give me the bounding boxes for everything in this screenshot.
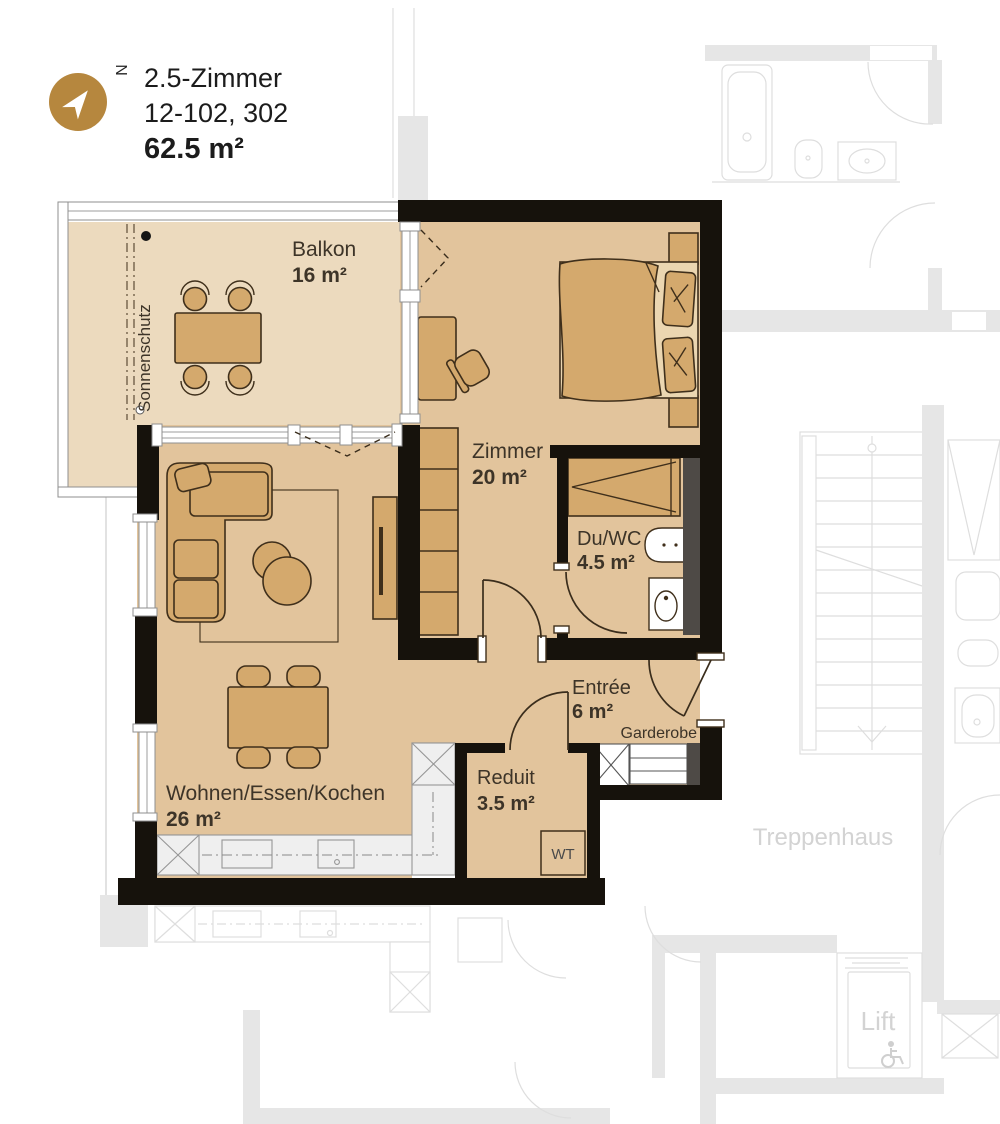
entree-name: Entrée [572, 677, 631, 699]
bed [559, 259, 698, 401]
tall-cabinet [157, 835, 199, 875]
sink-icon [838, 142, 896, 180]
kitchen-cabinet [222, 840, 272, 868]
door-arc [870, 203, 935, 268]
zimmer-area: 20 m² [472, 466, 527, 489]
neighbor-bathroom-right [940, 440, 1000, 855]
door-arc [940, 795, 1000, 855]
wt-label: WT [551, 846, 574, 863]
balkon-name: Balkon [292, 238, 356, 261]
north-compass-icon: N [49, 64, 129, 131]
wohnen-name: Wohnen/Essen/Kochen [166, 782, 385, 805]
tv-sideboard [373, 497, 397, 619]
staircase [800, 432, 928, 754]
zimmer-name: Zimmer [472, 440, 543, 463]
duct-shaft [687, 743, 700, 785]
shaft-box [942, 1014, 998, 1058]
north-letter: N [112, 64, 129, 76]
entree-area: 6 m² [572, 701, 613, 723]
window-bedroom [400, 222, 420, 423]
door-arc [868, 62, 933, 124]
sonnenschutz-label: Sonnenschutz [135, 304, 154, 412]
desk [418, 317, 456, 400]
washbasin [645, 528, 685, 562]
plan-title-area: 62.5 m² [144, 133, 244, 165]
sink [318, 840, 354, 868]
hall-wardrobe [417, 428, 458, 635]
duwc-area: 4.5 m² [577, 552, 635, 574]
wohnen-area: 26 m² [166, 808, 221, 831]
plan-title-units: 12-102, 302 [144, 98, 288, 128]
plan-header: N 2.5-Zimmer 12-102, 302 62.5 m² [49, 63, 288, 165]
tall-cabinet [412, 743, 455, 785]
floor-plan-canvas: Treppenhaus Lift [0, 0, 1000, 1124]
duct-shaft [683, 458, 700, 635]
shower [568, 458, 680, 516]
toilet [649, 578, 684, 630]
coffee-table [263, 557, 311, 605]
toilet-icon [795, 140, 822, 178]
balkon-area: 16 m² [292, 264, 347, 287]
window-living-top [152, 424, 402, 446]
garderobe-unit [593, 744, 687, 786]
treppenhaus-label: Treppenhaus [753, 824, 894, 851]
duwc-name: Du/WC [577, 528, 641, 550]
reduit-name: Reduit [477, 767, 535, 789]
door-arc [508, 920, 566, 978]
reduit-area: 3.5 m² [477, 793, 535, 815]
floor-plan-page: Treppenhaus Lift [0, 0, 1000, 1124]
plan-title-type: 2.5-Zimmer [144, 63, 282, 93]
lift-lobby [652, 935, 944, 1124]
garderobe-label: Garderobe [621, 725, 698, 742]
nightstand [669, 396, 698, 427]
nightstand [669, 233, 698, 264]
bathtub-icon [722, 65, 772, 180]
neighbor-kitchen [155, 906, 701, 1124]
lift-label: Lift [861, 1006, 896, 1036]
neighbor-bathroom [705, 45, 942, 312]
